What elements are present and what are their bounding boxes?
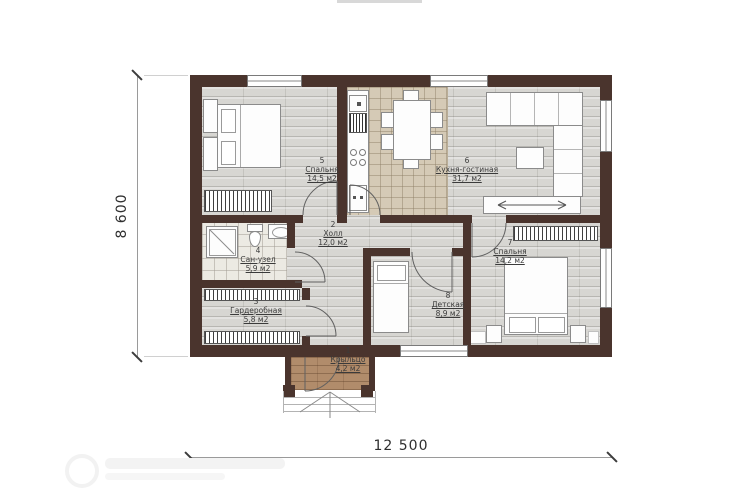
sliding-wardrobe — [483, 196, 581, 214]
nightstand — [486, 325, 502, 343]
wall-bathroom-right — [287, 222, 295, 248]
room-label-childroom: 8 Детская 8,9 м2 — [432, 291, 465, 318]
double-bed — [217, 104, 281, 168]
room-name: Гардеробная — [230, 306, 282, 315]
extension-line — [144, 75, 188, 76]
steps-direction-arrow — [300, 392, 360, 418]
room-label-kitchen-living: 6 Кухня-гостиная 31,7 м2 — [436, 156, 498, 183]
wall-bath-wardrobe — [202, 280, 302, 288]
knob-dot — [357, 102, 361, 106]
room-area: 14,5 м2 — [305, 174, 338, 183]
room-area: 12,0 м2 — [318, 238, 348, 247]
room-area: 5,9 м2 — [240, 264, 275, 273]
room-label-wardrobe: 3 Гардеробная 5,8 м2 — [230, 297, 282, 324]
room-area: 4,2 м2 — [331, 364, 366, 373]
porch-post — [361, 385, 373, 397]
watermark-text-blur — [105, 473, 225, 480]
step-rail — [283, 391, 284, 413]
room-label-porch: 1 Крыльцо 4,2 м2 — [331, 346, 366, 373]
room-name: Детская — [432, 300, 465, 309]
wall-bedroom5-kitchen — [337, 87, 347, 223]
chair — [430, 134, 443, 150]
wall-hall-top-b — [380, 215, 472, 223]
step-edge — [283, 411, 375, 412]
blanket-line — [240, 105, 241, 167]
porch-post — [283, 385, 295, 397]
extension-line — [144, 356, 188, 357]
sink-bowl — [359, 159, 366, 166]
pillow — [377, 265, 406, 281]
nightstand — [570, 325, 586, 343]
pillow — [221, 141, 236, 165]
hob-burner — [359, 149, 366, 156]
room-name: Сан-узел — [240, 255, 275, 264]
window — [600, 248, 612, 308]
fridge — [349, 185, 367, 211]
room-name: Крыльцо — [331, 355, 366, 364]
coffee-table — [516, 147, 544, 169]
room-number: 7 — [493, 238, 526, 247]
shower — [206, 226, 238, 258]
room-area: 5,8 м2 — [230, 315, 282, 324]
hob-burner — [350, 149, 357, 156]
top-edge-artifact — [337, 0, 422, 3]
window — [600, 100, 612, 152]
floor-mat — [588, 331, 599, 344]
wall-left — [190, 75, 202, 357]
pillow — [509, 317, 536, 333]
sofa-seat-right — [553, 125, 583, 197]
microwave — [349, 95, 367, 112]
dining-table — [393, 100, 431, 160]
room-number: 4 — [240, 246, 275, 255]
wall-childroom-left — [363, 256, 371, 345]
room-name: Кухня-гостиная — [436, 165, 498, 174]
room-area: 31,7 м2 — [436, 174, 498, 183]
dimension-height-label: 8 600 — [114, 193, 130, 238]
room-number: 2 — [318, 220, 348, 229]
wall-childroom-bedroom7 — [463, 223, 471, 345]
shower-inner — [209, 229, 236, 256]
floor-plan: 1 Крыльцо 4,2 м2 2 Холл 12,0 м2 3 Гардер… — [0, 0, 752, 502]
sink-bowl — [350, 159, 357, 166]
room-name: Спальня — [305, 165, 338, 174]
room-number: 3 — [230, 297, 282, 306]
room-number: 5 — [305, 156, 338, 165]
window — [247, 75, 302, 87]
blanket-line — [505, 313, 567, 314]
room-area: 14,2 м2 — [493, 256, 526, 265]
window — [430, 75, 488, 87]
dimension-width-label: 12 500 — [374, 438, 429, 454]
wardrobe-shelving — [204, 331, 300, 344]
watermark — [55, 450, 375, 490]
wall-wardrobe-right-bottom — [302, 336, 310, 345]
watermark-text-blur — [105, 458, 285, 469]
step-edge — [283, 397, 375, 398]
wall-hall-top-c — [506, 215, 600, 223]
fridge-dot — [353, 196, 356, 199]
pillow — [538, 317, 565, 333]
double-bed — [504, 257, 568, 335]
room-label-bathroom: 4 Сан-узел 5,9 м2 — [240, 246, 275, 273]
room-area: 8,9 м2 — [432, 309, 465, 318]
headboard-unit — [203, 137, 218, 171]
dimension-line-vertical — [137, 75, 138, 357]
chair — [430, 112, 443, 128]
watermark-logo — [65, 454, 99, 488]
wardrobe-shelving — [204, 190, 272, 212]
oven — [349, 113, 367, 133]
room-label-bedroom7: 7 Спальня 14,2 м2 — [493, 238, 526, 265]
room-name: Спальня — [493, 247, 526, 256]
room-label-bedroom5: 5 Спальня 14,5 м2 — [305, 156, 338, 183]
step-edge — [283, 404, 375, 405]
room-number: 6 — [436, 156, 498, 165]
window — [400, 345, 468, 357]
room-number: 8 — [432, 291, 465, 300]
step-rail — [375, 391, 376, 413]
single-bed — [373, 261, 409, 333]
blanket-line — [374, 283, 408, 284]
pillow — [221, 109, 236, 133]
fridge-dot — [360, 196, 363, 199]
room-name: Холл — [318, 229, 348, 238]
sofa-seat-top — [486, 92, 583, 126]
headboard-unit — [203, 99, 218, 133]
wall-childroom-top-a — [363, 248, 410, 256]
wall-wardrobe-right-top — [302, 288, 310, 300]
room-label-hall: 2 Холл 12,0 м2 — [318, 220, 348, 247]
room-number: 1 — [331, 346, 366, 355]
